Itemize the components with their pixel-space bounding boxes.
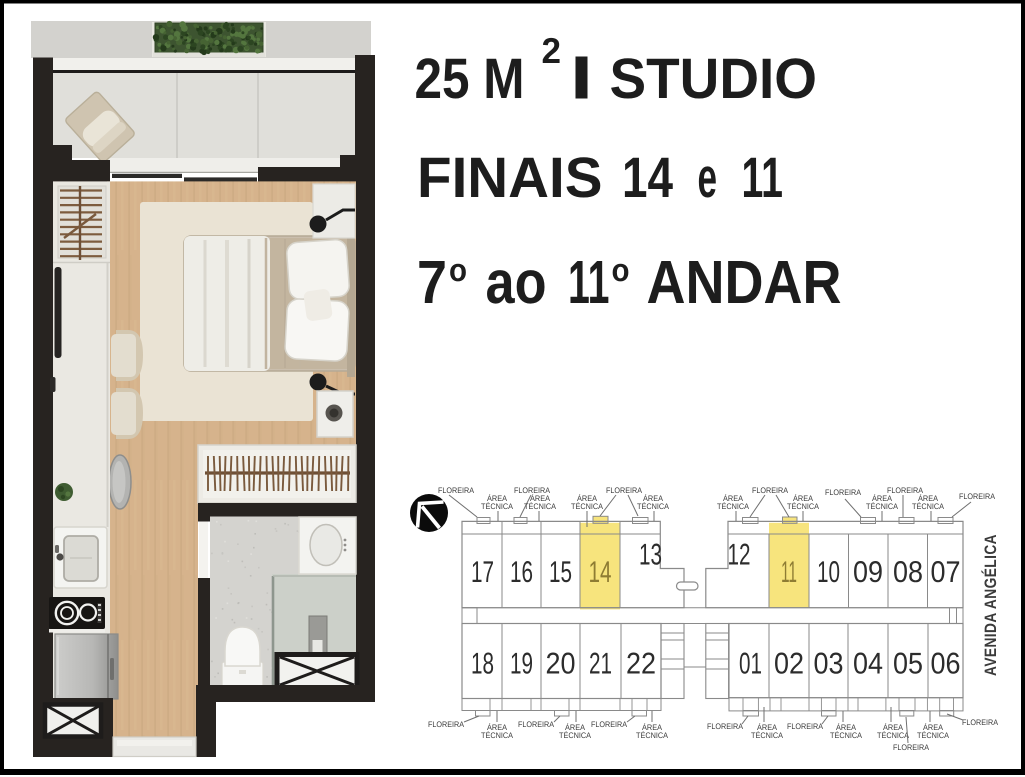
svg-text:FINAIS: FINAIS <box>417 146 603 210</box>
svg-text:06: 06 <box>931 648 961 681</box>
svg-text:TÉCNICA: TÉCNICA <box>637 502 670 511</box>
svg-text:21: 21 <box>589 648 612 681</box>
svg-text:01: 01 <box>739 648 762 681</box>
svg-text:08: 08 <box>893 556 923 589</box>
svg-text:14: 14 <box>589 556 612 589</box>
svg-text:17: 17 <box>471 556 494 589</box>
svg-text:FLOREIRA: FLOREIRA <box>707 722 744 731</box>
svg-text:TÉCNICA: TÉCNICA <box>571 502 604 511</box>
svg-text:FLOREIRA: FLOREIRA <box>428 720 465 729</box>
svg-text:FLOREIRA: FLOREIRA <box>606 486 643 495</box>
svg-text:TÉCNICA: TÉCNICA <box>524 502 557 511</box>
svg-text:19: 19 <box>510 648 533 681</box>
svg-text:FLOREIRA: FLOREIRA <box>825 488 862 497</box>
svg-text:TÉCNICA: TÉCNICA <box>866 502 899 511</box>
svg-text:ao: ao <box>486 248 547 316</box>
svg-text:FLOREIRA: FLOREIRA <box>787 722 824 731</box>
svg-text:TÉCNICA: TÉCNICA <box>481 502 514 511</box>
svg-text:03: 03 <box>814 648 844 681</box>
svg-text:FLOREIRA: FLOREIRA <box>591 720 628 729</box>
svg-text:TÉCNICA: TÉCNICA <box>481 731 514 740</box>
svg-text:14: 14 <box>622 146 673 210</box>
svg-text:FLOREIRA: FLOREIRA <box>518 720 555 729</box>
svg-text:09: 09 <box>853 556 883 589</box>
svg-text:TÉCNICA: TÉCNICA <box>787 502 820 511</box>
svg-text:FLOREIRA: FLOREIRA <box>959 492 996 501</box>
svg-text:11: 11 <box>781 556 797 589</box>
svg-text:TÉCNICA: TÉCNICA <box>917 731 950 740</box>
svg-text:TÉCNICA: TÉCNICA <box>877 731 910 740</box>
svg-text:FLOREIRA: FLOREIRA <box>438 486 475 495</box>
svg-text:05: 05 <box>893 648 923 681</box>
svg-text:13: 13 <box>639 539 662 572</box>
svg-text:20: 20 <box>546 648 576 681</box>
svg-text:ANDAR: ANDAR <box>647 248 842 316</box>
svg-text:FLOREIRA: FLOREIRA <box>752 486 789 495</box>
svg-text:11: 11 <box>568 248 610 316</box>
svg-text:TÉCNICA: TÉCNICA <box>559 731 592 740</box>
svg-text:22: 22 <box>626 648 656 681</box>
svg-text:15: 15 <box>549 556 572 589</box>
svg-text:TÉCNICA: TÉCNICA <box>751 731 784 740</box>
svg-text:04: 04 <box>853 648 883 681</box>
svg-text:FLOREIRA: FLOREIRA <box>962 718 999 727</box>
svg-text:2: 2 <box>542 30 562 71</box>
svg-text:TÉCNICA: TÉCNICA <box>717 502 750 511</box>
svg-text:07: 07 <box>931 556 961 589</box>
svg-text:TÉCNICA: TÉCNICA <box>636 731 669 740</box>
svg-text:STUDIO: STUDIO <box>610 47 818 111</box>
svg-text:11: 11 <box>742 146 784 210</box>
svg-text:TÉCNICA: TÉCNICA <box>830 731 863 740</box>
svg-text:o: o <box>449 252 467 288</box>
svg-text:12: 12 <box>728 539 751 572</box>
svg-text:10: 10 <box>817 556 840 589</box>
svg-text:16: 16 <box>510 556 533 589</box>
svg-text:o: o <box>612 252 630 288</box>
svg-text:TÉCNICA: TÉCNICA <box>912 502 945 511</box>
svg-text:7: 7 <box>417 248 447 316</box>
svg-text:FLOREIRA: FLOREIRA <box>893 743 930 752</box>
svg-text:AVENIDA ANGÉLICA: AVENIDA ANGÉLICA <box>981 534 1000 676</box>
svg-text:02: 02 <box>774 648 804 681</box>
svg-text:18: 18 <box>471 648 494 681</box>
svg-text:25 M: 25 M <box>415 47 525 111</box>
svg-text:e: e <box>698 146 718 210</box>
